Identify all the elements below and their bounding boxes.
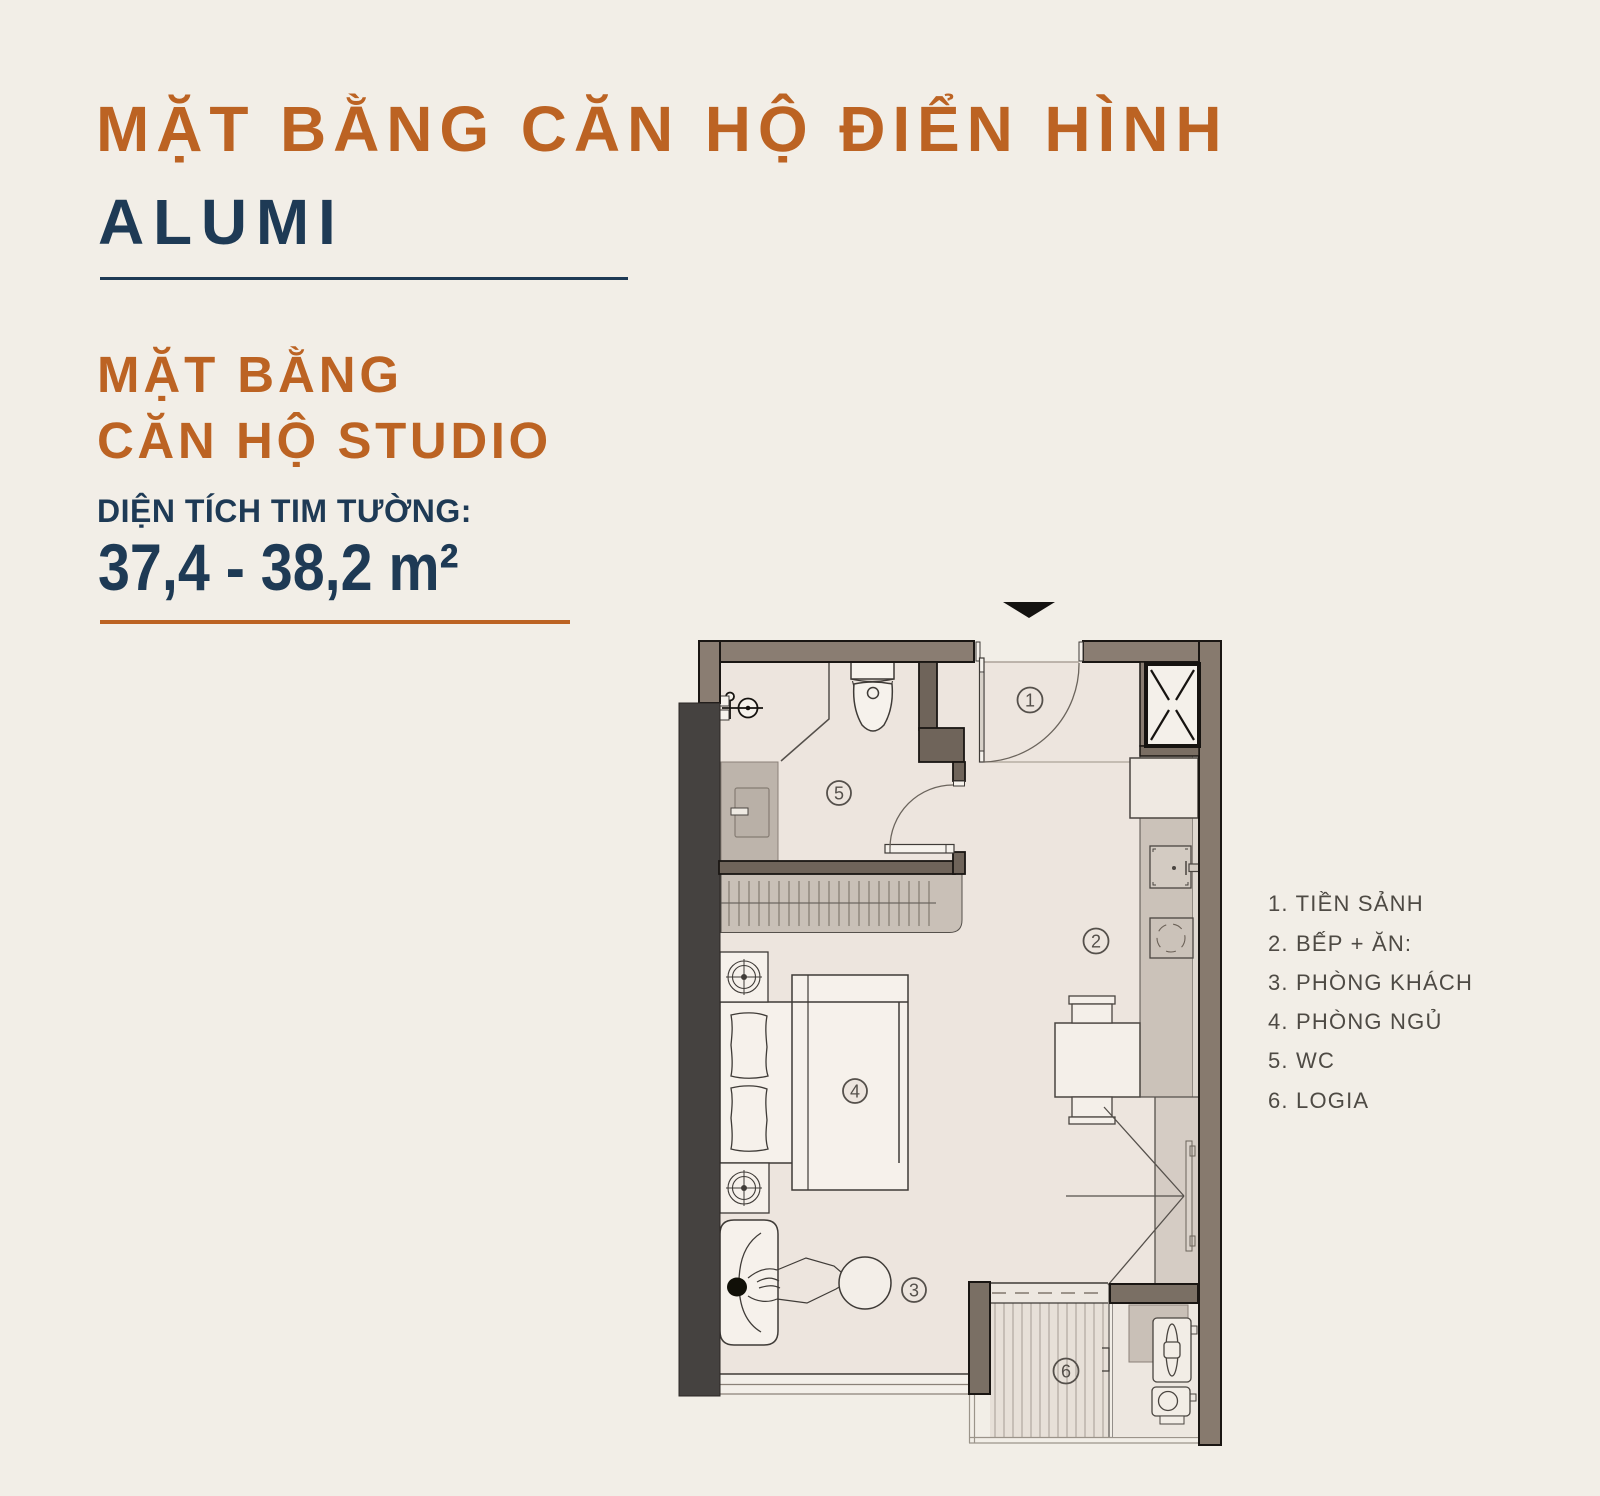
svg-text:4: 4 <box>850 1082 860 1102</box>
svg-text:3: 3 <box>909 1281 919 1301</box>
svg-text:1: 1 <box>1025 691 1035 711</box>
svg-text:5: 5 <box>834 784 844 804</box>
svg-text:2: 2 <box>1091 932 1101 952</box>
svg-text:6: 6 <box>1061 1362 1071 1382</box>
